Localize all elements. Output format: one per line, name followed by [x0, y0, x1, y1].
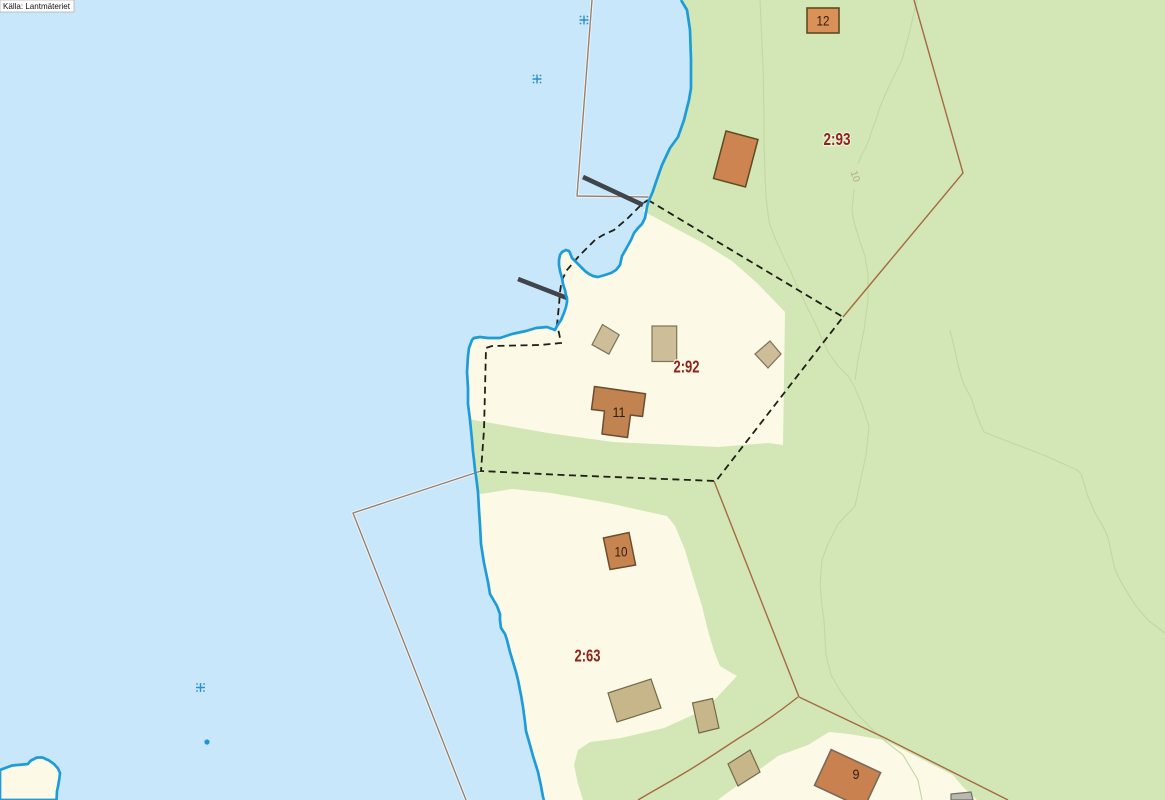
svg-text:Källa: Lantmäteriet: Källa: Lantmäteriet [3, 1, 71, 11]
svg-text:9: 9 [853, 767, 860, 782]
svg-text:11: 11 [613, 404, 626, 420]
svg-text:2:63: 2:63 [575, 646, 601, 666]
svg-text:12: 12 [817, 14, 830, 29]
svg-text:10: 10 [615, 545, 628, 560]
svg-text:2:92: 2:92 [674, 357, 700, 377]
svg-text:2:93: 2:93 [824, 129, 851, 149]
